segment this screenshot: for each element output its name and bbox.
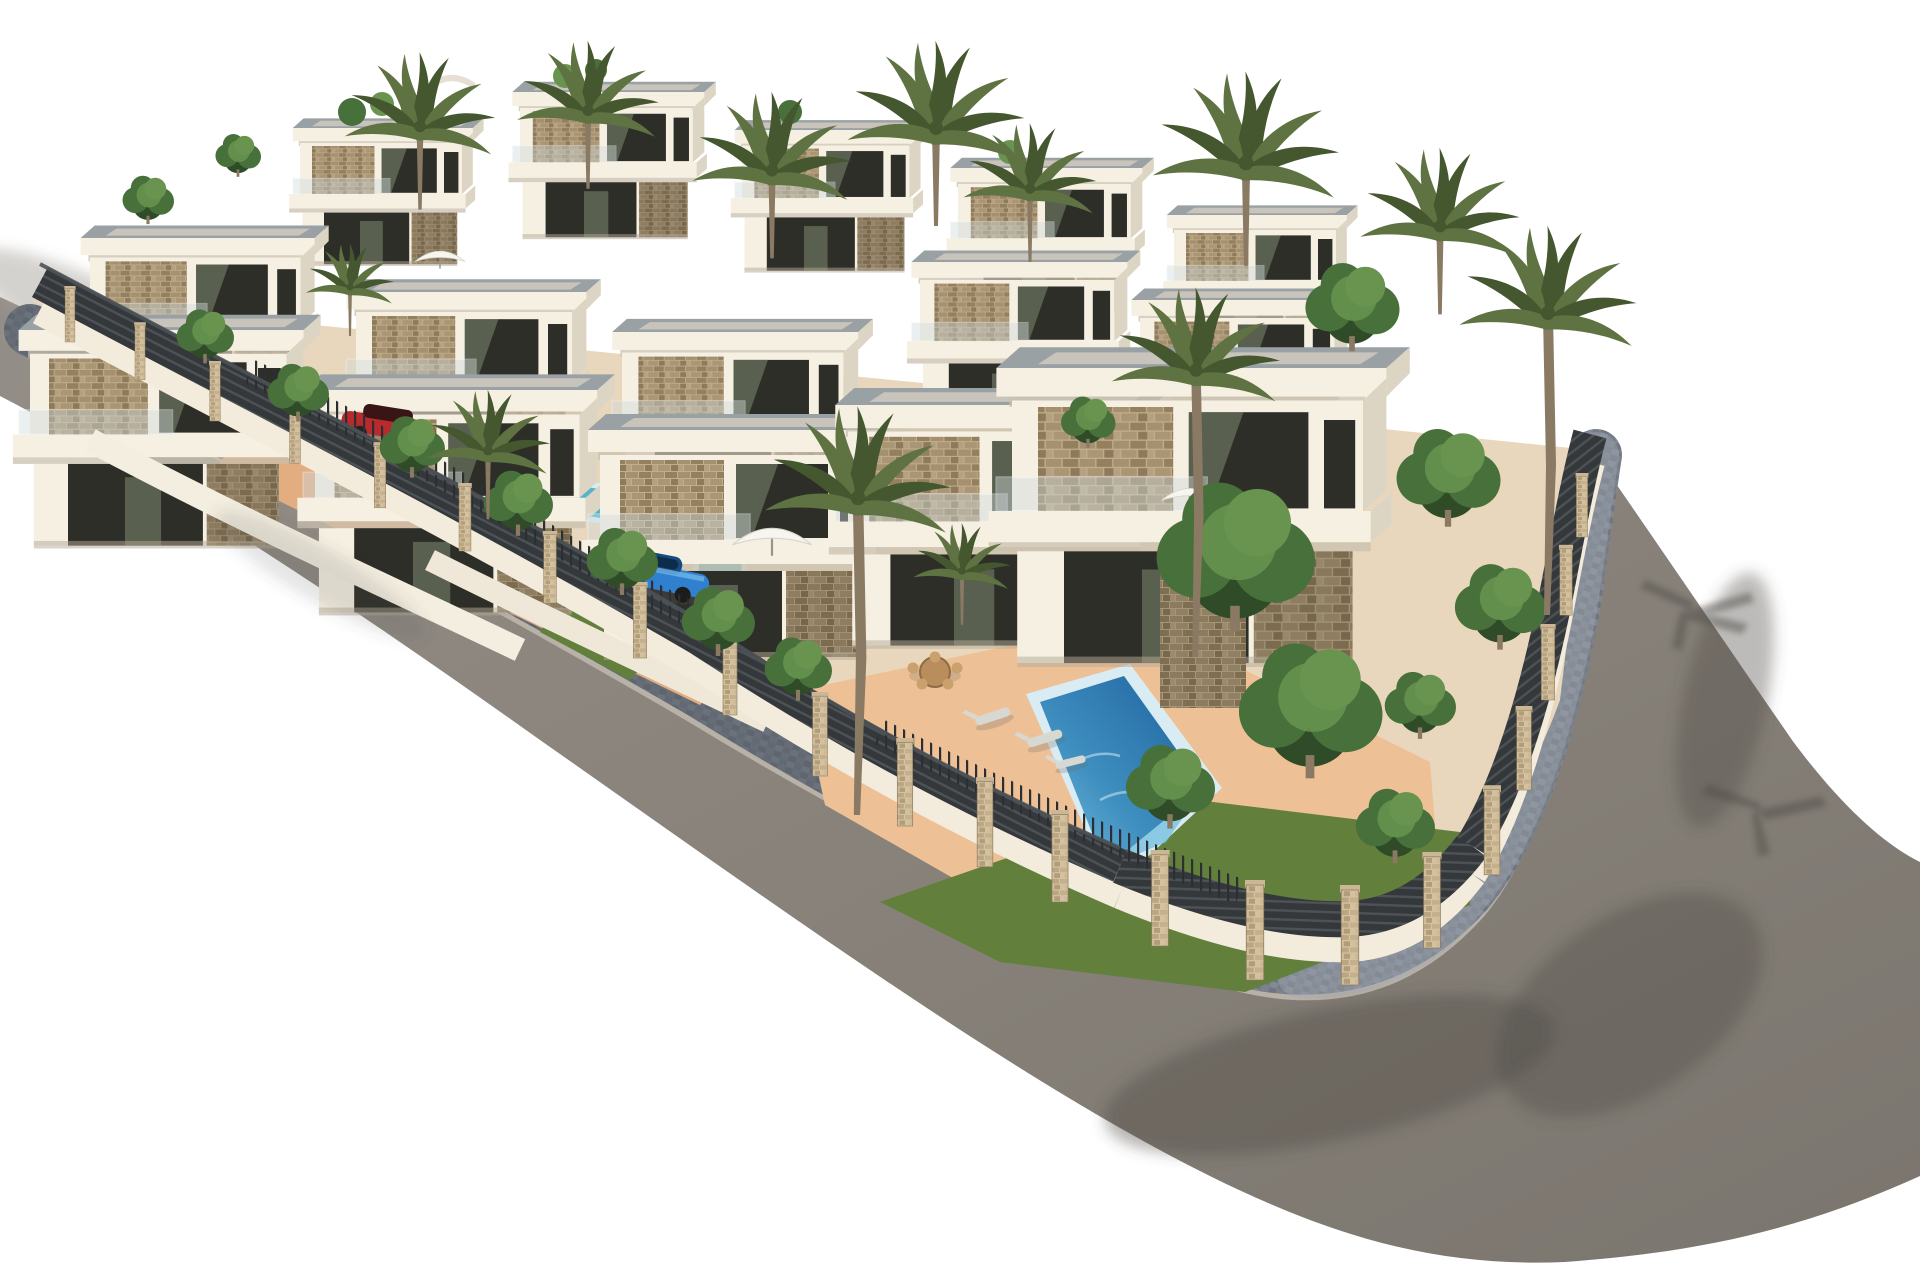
stone-pillar: [1483, 785, 1501, 875]
stone-pillar: [64, 286, 75, 342]
stone-pillar: [1422, 852, 1441, 948]
stone-pillar: [209, 361, 221, 421]
stone-pillar: [1150, 850, 1169, 946]
stone-pillar: [1559, 545, 1573, 615]
stone-pillar: [632, 582, 647, 658]
stone-pillar: [1576, 473, 1589, 537]
stone-pillar: [1516, 706, 1533, 790]
stone-pillar: [458, 483, 472, 551]
stone-pillar: [812, 692, 829, 776]
stone-pillar: [896, 738, 914, 826]
stone-pillar: [543, 531, 557, 603]
architectural-render-canvas: Aerial render of a modern white villa de…: [0, 0, 1920, 1280]
stone-pillar: [134, 322, 146, 380]
stone-pillar: [1051, 810, 1069, 902]
stone-pillar: [1245, 880, 1265, 980]
stone-pillar: [1340, 885, 1360, 985]
stone-pillar: [1540, 624, 1555, 700]
stone-pillar: [976, 777, 994, 867]
